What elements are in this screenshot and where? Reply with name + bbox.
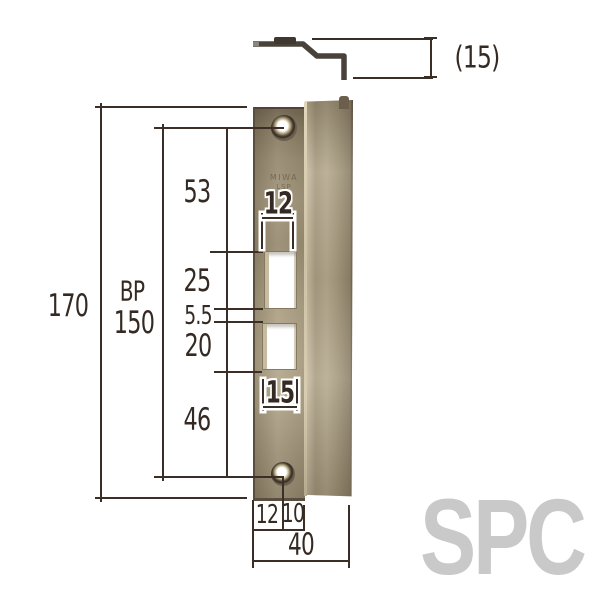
ext-line-lip-top <box>312 38 433 40</box>
dim-label-12-bottom: 12 <box>256 500 278 530</box>
dim-label-25: 25 <box>184 263 211 299</box>
dim-line-bp150 <box>162 124 164 481</box>
ext-line-plate-left-edge <box>252 500 254 568</box>
ext-line-lip-bottom <box>353 77 433 79</box>
tick-seg-55-20 <box>214 321 263 323</box>
dim-label-bp: BP <box>120 275 145 308</box>
ext-line-top-screw-center <box>154 127 284 129</box>
dim-label-55: 5.5 <box>184 301 212 331</box>
ext-line-bottom-screw-center <box>154 476 284 478</box>
tick-seg-20-46 <box>214 371 262 373</box>
brand-watermark: SPC <box>420 483 584 591</box>
tick-seg-53-25 <box>210 251 263 253</box>
latch-box-bump <box>274 37 296 44</box>
dim-line-170 <box>100 103 102 502</box>
dim-label-46: 46 <box>184 402 211 438</box>
dim-serif-lip-bottom <box>424 76 437 78</box>
ext-line-170-top <box>95 106 247 108</box>
engraving-line1: MIWA <box>261 173 307 183</box>
dim-label-20: 20 <box>185 328 212 364</box>
lip-tab-top <box>339 96 349 109</box>
dim-label-15-hole: 15 <box>266 376 295 411</box>
dead-bolt-hole <box>262 323 297 370</box>
ext-line-170-bottom <box>95 497 247 499</box>
dim-line-segments <box>226 127 228 478</box>
profile-left-tip <box>253 42 259 46</box>
tick-seg-25-55 <box>214 308 263 310</box>
dim-label-10-bottom: 10 <box>282 499 304 529</box>
dim-serif-lip-top <box>424 37 437 39</box>
dim-label-40: 40 <box>288 528 314 563</box>
dim-label-12-hole: 12 <box>264 187 293 222</box>
dim-label-lip-depth: (15) <box>455 41 500 76</box>
lip-profile-view <box>245 28 375 88</box>
lip-profile-path <box>253 44 344 80</box>
dim-label-170: 170 <box>48 288 88 324</box>
ext-line-plate-right-edge <box>348 505 350 568</box>
dim-line-lip <box>430 38 432 79</box>
fold-line <box>304 102 307 496</box>
dim-label-53: 53 <box>184 174 211 210</box>
dim-label-150: 150 <box>114 305 154 341</box>
latch-bolt-hole <box>264 251 297 309</box>
strike-plate-dimension-diagram: SPC (15) MIWA LSP 170 BP 150 53 25 5.5 2… <box>0 0 600 600</box>
plate-flange <box>305 100 353 498</box>
